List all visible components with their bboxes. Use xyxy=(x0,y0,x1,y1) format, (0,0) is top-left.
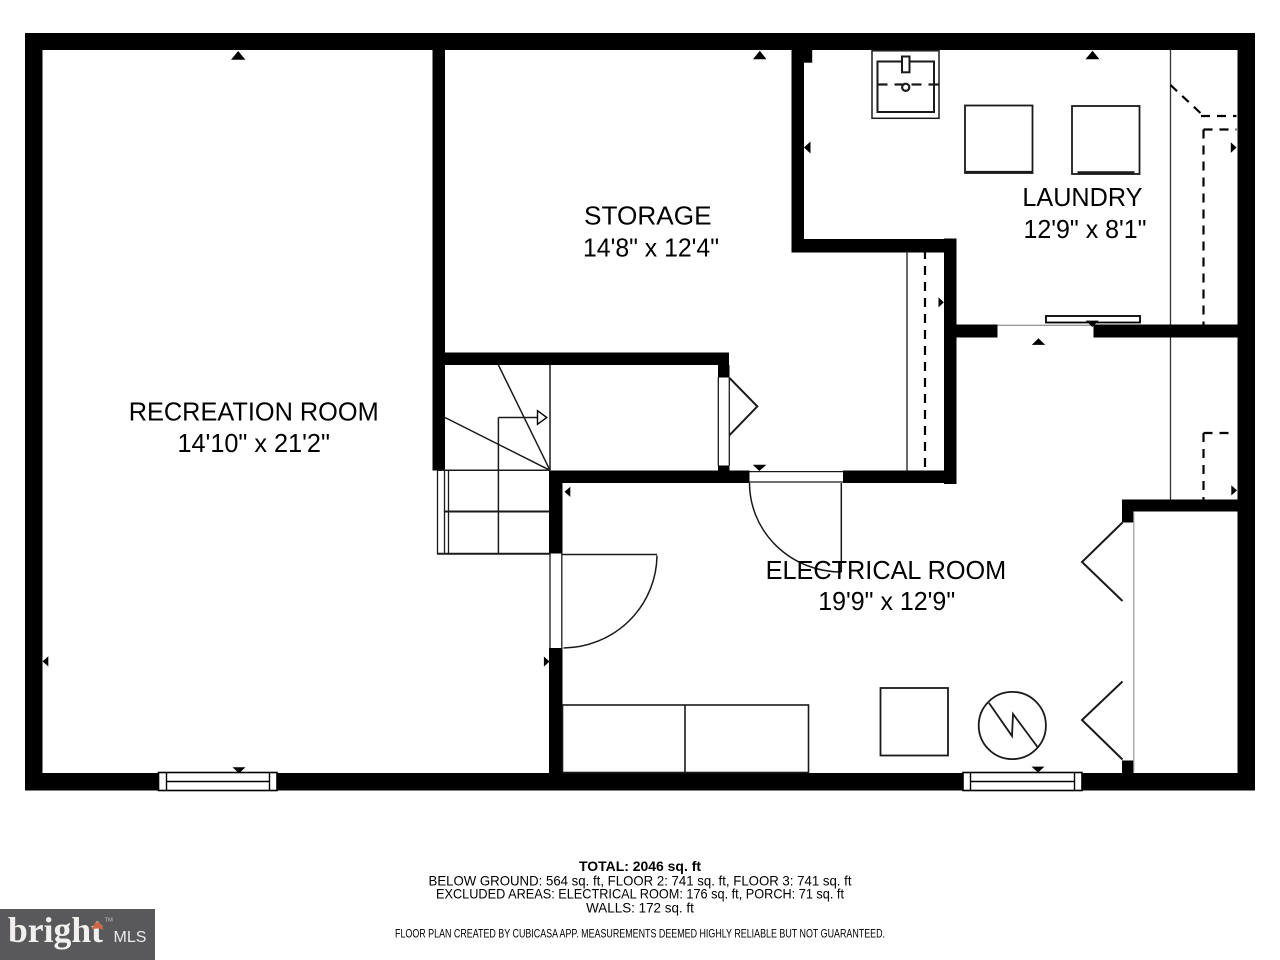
svg-text:19'9" x 12'9": 19'9" x 12'9" xyxy=(818,586,955,616)
svg-text:ELECTRICAL ROOM: ELECTRICAL ROOM xyxy=(766,555,1007,585)
svg-text:FLOOR PLAN CREATED BY CUBICASA: FLOOR PLAN CREATED BY CUBICASA APP. MEAS… xyxy=(395,927,885,941)
svg-text:12'9" x 8'1": 12'9" x 8'1" xyxy=(1024,214,1147,244)
svg-text:LAUNDRY: LAUNDRY xyxy=(1022,182,1142,212)
svg-text:MLS: MLS xyxy=(114,929,147,946)
svg-text:RECREATION ROOM: RECREATION ROOM xyxy=(129,397,379,427)
svg-text:WALLS: 172 sq. ft: WALLS: 172 sq. ft xyxy=(586,899,694,915)
svg-text:14'10" x 21'2": 14'10" x 21'2" xyxy=(177,428,330,458)
svg-text:bright: bright xyxy=(8,910,103,950)
svg-text:TM: TM xyxy=(105,918,114,924)
svg-text:14'8" x 12'4": 14'8" x 12'4" xyxy=(583,233,719,263)
svg-text:STORAGE: STORAGE xyxy=(584,201,712,231)
